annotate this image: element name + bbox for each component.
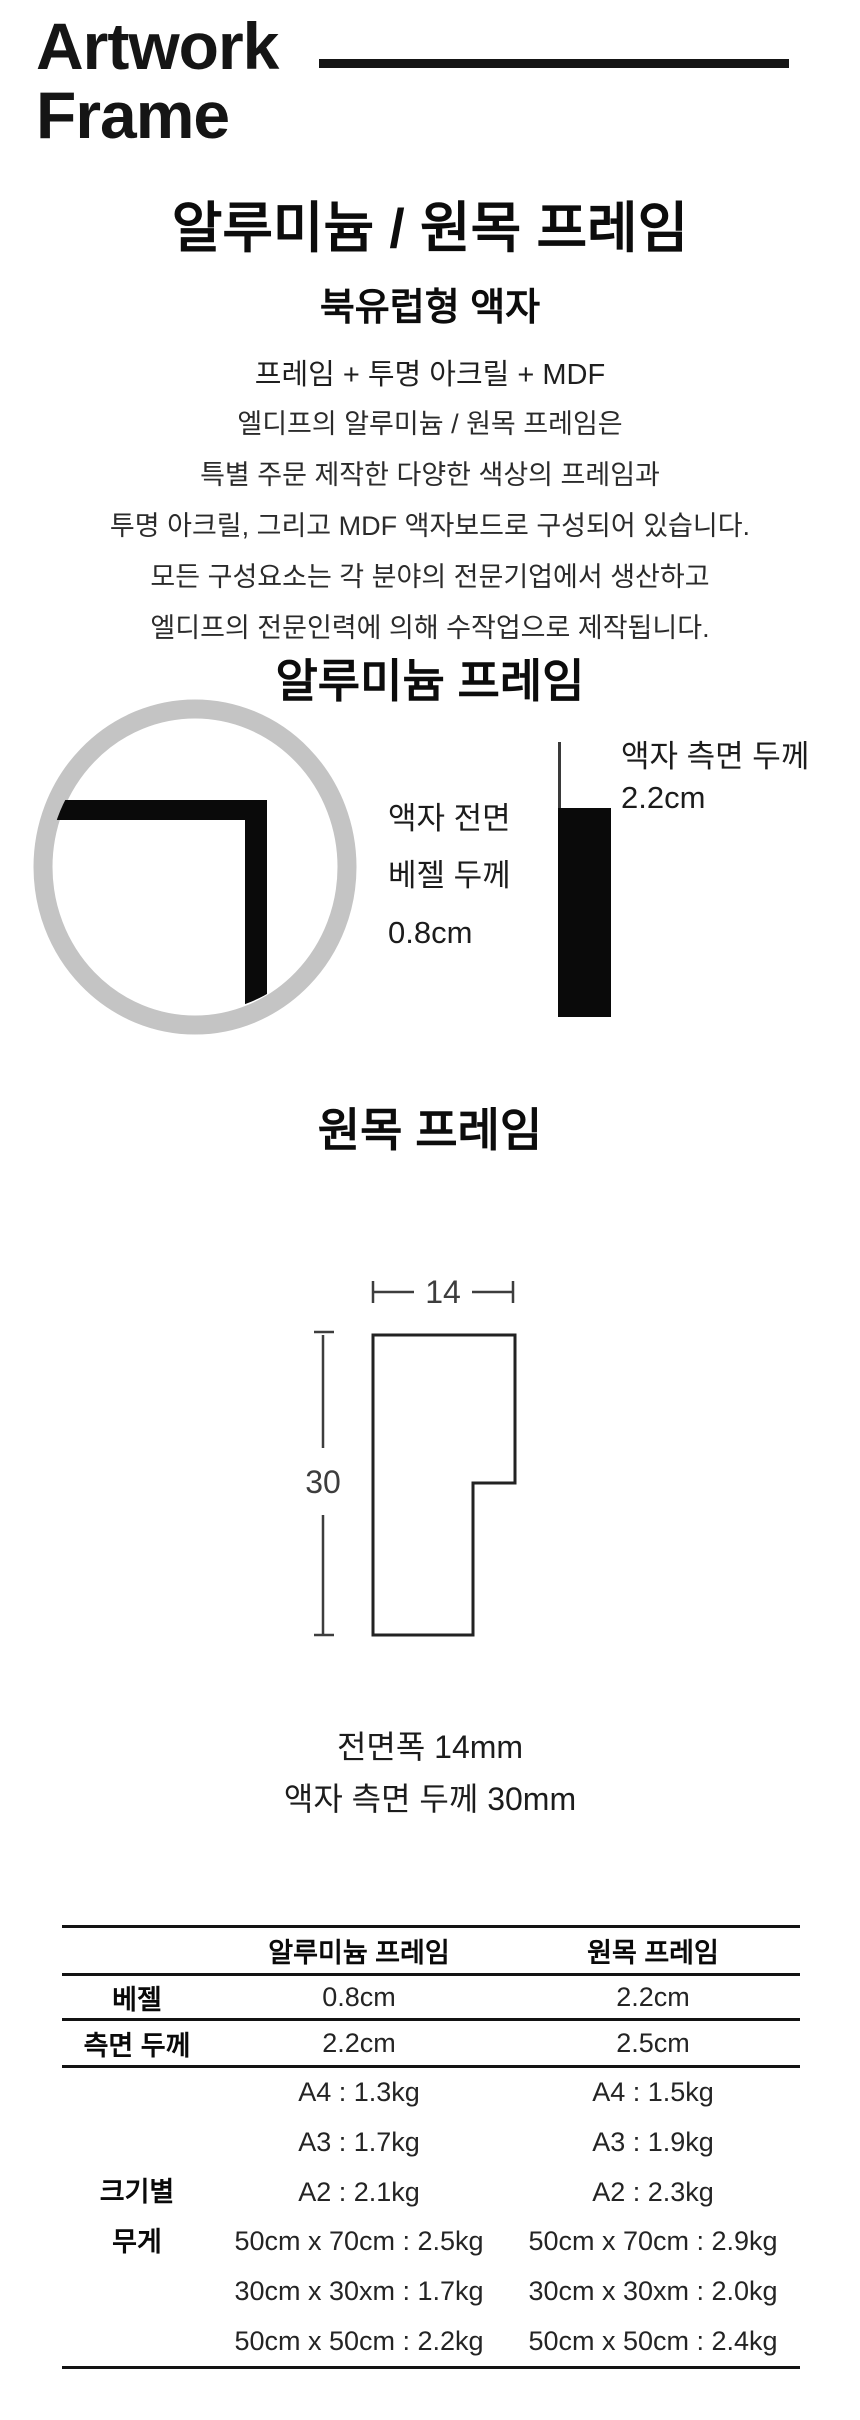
weight-value: 50cm x 70cm : 2.9kg [506, 2217, 800, 2267]
weight-value: A4 : 1.3kg [212, 2068, 506, 2118]
composition-line: 프레임 + 투명 아크릴 + MDF [0, 351, 860, 393]
table-header-row: 알루미늄 프레임 원목 프레임 [62, 1928, 800, 1976]
side-thickness-label-line: 액자 측면 두께 [621, 736, 809, 777]
row-label-side-thickness: 측면 두께 [62, 2021, 212, 2065]
weight-value: A4 : 1.5kg [506, 2068, 800, 2118]
side-thickness-label-line: 2.2cm [621, 777, 809, 818]
bezel-aluminum-value: 0.8cm [212, 1976, 506, 2018]
front-bezel-label-line: 0.8cm [388, 904, 511, 961]
page-title: 알루미늄 / 원목 프레임 [0, 183, 860, 263]
weight-value: A3 : 1.9kg [506, 2118, 800, 2168]
side-thickness-label: 액자 측면 두께 2.2cm [621, 736, 809, 818]
front-bezel-label: 액자 전면 베젤 두께 0.8cm [388, 790, 511, 961]
header-cell-empty [62, 1928, 212, 1973]
weight-value: 30cm x 30xm : 1.7kg [212, 2267, 506, 2317]
front-bezel-label-line: 액자 전면 [388, 790, 511, 847]
side-thickness-wood-value: 2.5cm [506, 2021, 800, 2065]
product-info-page: Artwork Frame 알루미늄 / 원목 프레임 북유럽형 액자 프레임 … [0, 0, 860, 2420]
page-subtitle: 북유럽형 액자 [0, 276, 860, 331]
weight-value: 30cm x 30xm : 2.0kg [506, 2267, 800, 2317]
magnifier-circle-icon [43, 709, 347, 1025]
weight-label-line: 크기별 [100, 2167, 175, 2217]
description-line: 투명 아크릴, 그리고 MDF 액자보드로 구성되어 있습니다. [0, 501, 860, 552]
table-row: 베젤 0.8cm 2.2cm [62, 1976, 800, 2021]
wood-section-heading: 원목 프레임 [0, 1094, 860, 1160]
description-paragraph: 엘디프의 알루미늄 / 원목 프레임은 특별 주문 제작한 다양한 색상의 프레… [0, 399, 860, 654]
logo-rule-line [319, 59, 789, 68]
weight-value: A3 : 1.7kg [212, 2118, 506, 2168]
table-row: 측면 두께 2.2cm 2.5cm [62, 2021, 800, 2068]
header-cell-wood: 원목 프레임 [506, 1928, 800, 1973]
weight-values-aluminum: A4 : 1.3kg A3 : 1.7kg A2 : 2.1kg 50cm x … [212, 2068, 506, 2366]
row-label-bezel: 베젤 [62, 1976, 212, 2018]
weight-value: A2 : 2.3kg [506, 2167, 800, 2217]
brand-logo: Artwork Frame [36, 12, 278, 150]
side-pointer-line [558, 742, 561, 808]
wood-caption-line: 전면폭 14mm [0, 1721, 860, 1773]
side-thickness-aluminum-value: 2.2cm [212, 2021, 506, 2065]
wood-dimensions-caption: 전면폭 14mm 액자 측면 두께 30mm [0, 1721, 860, 1825]
moulding-profile-outline [373, 1335, 515, 1635]
side-thickness-bar [558, 808, 611, 1017]
wood-frame-profile-diagram: 14 30 [280, 1260, 580, 1655]
description-line: 모든 구성요소는 각 분야의 전문기업에서 생산하고 [0, 552, 860, 603]
description-line: 엘디프의 알루미늄 / 원목 프레임은 [0, 399, 860, 450]
brand-logo-line1: Artwork [36, 12, 278, 81]
width-dimension-value: 14 [425, 1274, 461, 1310]
weight-value: 50cm x 50cm : 2.4kg [506, 2316, 800, 2366]
description-line: 특별 주문 제작한 다양한 색상의 프레임과 [0, 450, 860, 501]
weight-label-line: 무게 [112, 2217, 162, 2267]
table-row-weights: 크기별 무게 A4 : 1.3kg A3 : 1.7kg A2 : 2.1kg … [62, 2068, 800, 2369]
weight-value: A2 : 2.1kg [212, 2167, 506, 2217]
weight-value: 50cm x 50cm : 2.2kg [212, 2316, 506, 2366]
row-label-weight-by-size: 크기별 무게 [62, 2068, 212, 2366]
front-bezel-label-line: 베젤 두께 [388, 847, 511, 904]
wood-caption-line: 액자 측면 두께 30mm [0, 1773, 860, 1825]
header-cell-aluminum: 알루미늄 프레임 [212, 1928, 506, 1973]
bezel-wood-value: 2.2cm [506, 1976, 800, 2018]
weight-value: 50cm x 70cm : 2.5kg [212, 2217, 506, 2267]
height-dimension-value: 30 [305, 1464, 341, 1500]
spec-comparison-table: 알루미늄 프레임 원목 프레임 베젤 0.8cm 2.2cm 측면 두께 2.2… [62, 1925, 800, 2369]
weight-values-wood: A4 : 1.5kg A3 : 1.9kg A2 : 2.3kg 50cm x … [506, 2068, 800, 2366]
brand-logo-line2: Frame [36, 81, 278, 150]
